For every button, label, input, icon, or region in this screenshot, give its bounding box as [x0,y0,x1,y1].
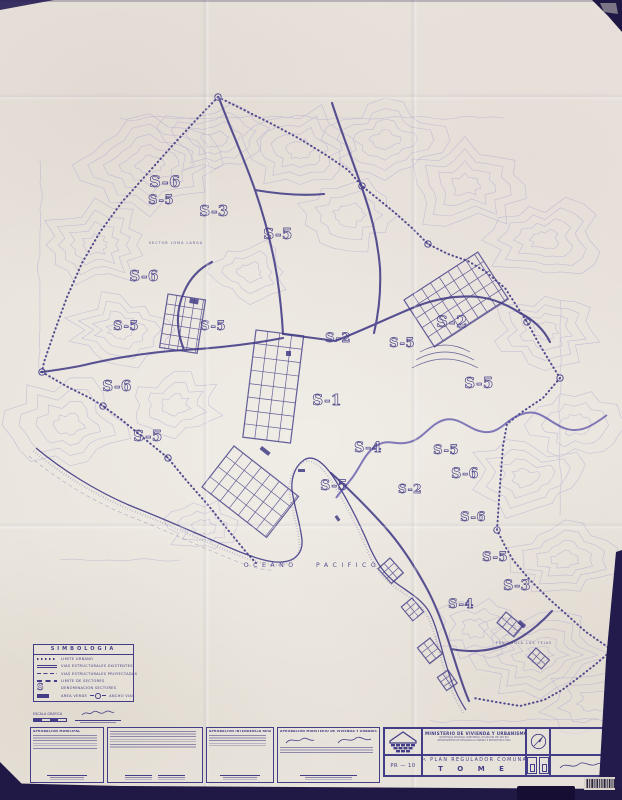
scanned-map-sheet: S-6S-5S-3S-5S-6S-5S-5S-2S-2S-5S-6S-1S-5S… [0,0,622,800]
sector-label: S-5 [320,478,348,494]
sector-letter-symbol: S [37,685,58,691]
sector-label: S-5 [482,550,508,565]
sector-label: S-2 [398,482,422,496]
legend-label: VIAS ESTRUCTURALES PROYECTADAS [61,672,137,676]
sheet-code-cell: PR — 10 [384,755,422,776]
approval-box-minvu: APROBACION MINISTERIO DE VIVIENDA Y URBA… [277,727,380,783]
contour-lines [2,98,622,734]
approval-box-intendencia: APROBACION INTENDENCIA REGION DEL BIO - … [206,727,274,783]
north-arrow-icon: ↖ [423,758,428,763]
approval-title: APROBACION MINISTERIO DE VIVIENDA Y URBA… [280,730,377,734]
scale-bar [33,718,67,722]
sector-label: S-6 [102,377,132,395]
legend-label: ANCHO VIAS [109,694,135,698]
sector-label: S-5 [464,374,494,392]
graphic-scale: ESCALA GRAFICA [33,712,163,722]
ministry-sub2: DEPARTAMENTO DE DESARROLLO URBANO E INFR… [430,739,518,742]
road-width-symbol [90,693,106,699]
titleblock-signature-scribble [552,759,610,772]
sheet-code: PR — 10 [390,763,415,769]
structural-roads [41,98,552,701]
sector-label: S-5 [433,443,459,458]
sector-label: S-1 [312,391,342,409]
projected-roads-symbol [37,673,58,675]
signature-scribble [80,708,116,718]
approval-signatures [280,734,376,746]
green-area-symbol [37,694,58,698]
place-label: SECTOR LOMA LARGA [149,241,203,245]
titleblock-signature-cell [550,755,611,776]
legend-label: AREA VERDE [61,694,87,698]
sector-label: S-6 [460,510,486,525]
plan-title-cell: ↖PLAN REGULADOR COMUNAL T O M E [422,755,526,776]
minvu-logo-cell [384,728,422,755]
sector-label: S-5 [113,319,139,334]
sector-label: S-5 [133,427,163,445]
ministry-sub1: SECRETARIA REGIONAL MINISTERIAL VIII REG… [430,736,518,739]
approvals-strip: APROBACION MUNICIPAL APROBACION INTENDEN… [30,727,382,783]
approval-title: APROBACION MUNICIPAL [33,730,101,734]
sector-label: S-4 [354,440,382,456]
legend-box: SIMBOLOGIA LIMITE URBANO VIAS ESTRUCTURA… [33,644,134,702]
title-block: MINISTERIO DE VIVIENDA Y URBANISMO SECRE… [383,727,612,777]
legend-label: LIMITE DE SECTORES [61,679,105,683]
sector-label: S-5 [263,225,293,243]
sector-label: S-2 [436,312,467,331]
scale-label: ESCALA GRAFICA [33,712,62,716]
compass-cell [526,728,550,755]
green-area-patches [189,298,526,628]
stamp-shape [527,757,537,774]
sector-label: S-2 [325,331,351,346]
approval-box-text [107,727,203,783]
legend-title: SIMBOLOGIA [34,645,133,655]
sector-label: S-6 [129,267,159,285]
stamp-cell [526,755,550,776]
commune-name: T O M E [423,765,525,773]
approval-title: APROBACION INTENDENCIA REGION DEL BIO - … [209,730,271,734]
signature-small [75,708,121,724]
compass-icon [530,733,547,750]
place-label: PENINSULA LAS TEJAS [496,641,552,645]
ocean-label: OCEANO PACIFICO [244,562,380,569]
street-grids [160,252,550,690]
titleblock-empty-cell [550,728,611,755]
stamp-shape [539,757,549,774]
sector-label: S-5 [148,193,174,208]
ministry-cell: MINISTERIO DE VIVIENDA Y URBANISMO SECRE… [422,728,526,755]
minvu-logo-icon [387,730,419,753]
legend-label: DENOMINACION SECTORES [61,686,116,690]
legend-label: LIMITE URBANO [61,657,93,661]
curved-streets [412,345,478,368]
sector-limit-symbol [37,680,58,681]
legend-label: VIAS ESTRUCTURALES EXISTENTES [61,664,133,668]
sector-label: S-5 [389,336,415,351]
map-labels: S-6S-5S-3S-5S-6S-5S-5S-2S-2S-5S-6S-1S-5S… [102,172,552,645]
sector-label: S-6 [451,466,479,482]
sector-label: S-3 [199,202,229,220]
ministry-name: MINISTERIO DE VIVIENDA Y URBANISMO [425,731,523,736]
plan-type: PLAN REGULADOR COMUNAL [430,758,526,763]
sector-label: S-4 [448,597,474,612]
sector-label: S-5 [200,319,226,334]
urban-limit-symbol [37,658,58,660]
sector-label: S-6 [149,172,180,191]
existing-roads-symbol [37,665,58,668]
approval-box-municipal: APROBACION MUNICIPAL [30,727,104,783]
sector-label: S-3 [503,578,531,594]
